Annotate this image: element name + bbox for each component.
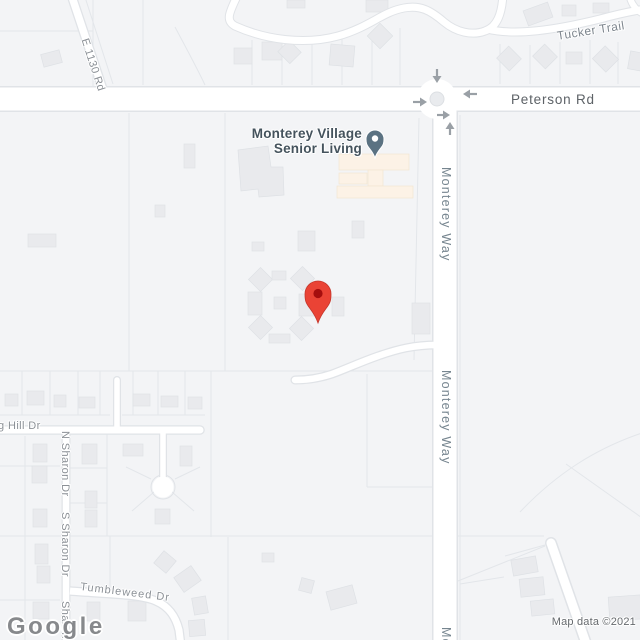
roundabout (417, 79, 457, 119)
google-logo[interactable]: Google (7, 613, 105, 640)
road-label-hill-dr: g Hill Dr (0, 420, 41, 432)
poi-label-line1: Monterey Village (232, 127, 362, 142)
road-label-n-sharon-dr: N Sharon Dr (59, 431, 71, 497)
road-label-peterson-rd: Peterson Rd (511, 92, 595, 107)
poi-label[interactable]: Monterey Village Senior Living (232, 127, 362, 156)
map-canvas[interactable]: Monterey Village Senior Living Peterson … (0, 0, 640, 640)
road-label-monterey-way-upper: Monterey Way (439, 167, 453, 262)
map-copyright: Map data ©2021 (552, 616, 636, 628)
poi-label-line2: Senior Living (232, 142, 362, 157)
road-label-monterey-way-bottom: Monterey Way (439, 627, 453, 640)
road-label-s-sharon-dr: S Sharon Dr (59, 512, 71, 577)
road-label-monterey-way-lower: Monterey Way (439, 370, 453, 465)
roundabout-island (430, 92, 444, 106)
